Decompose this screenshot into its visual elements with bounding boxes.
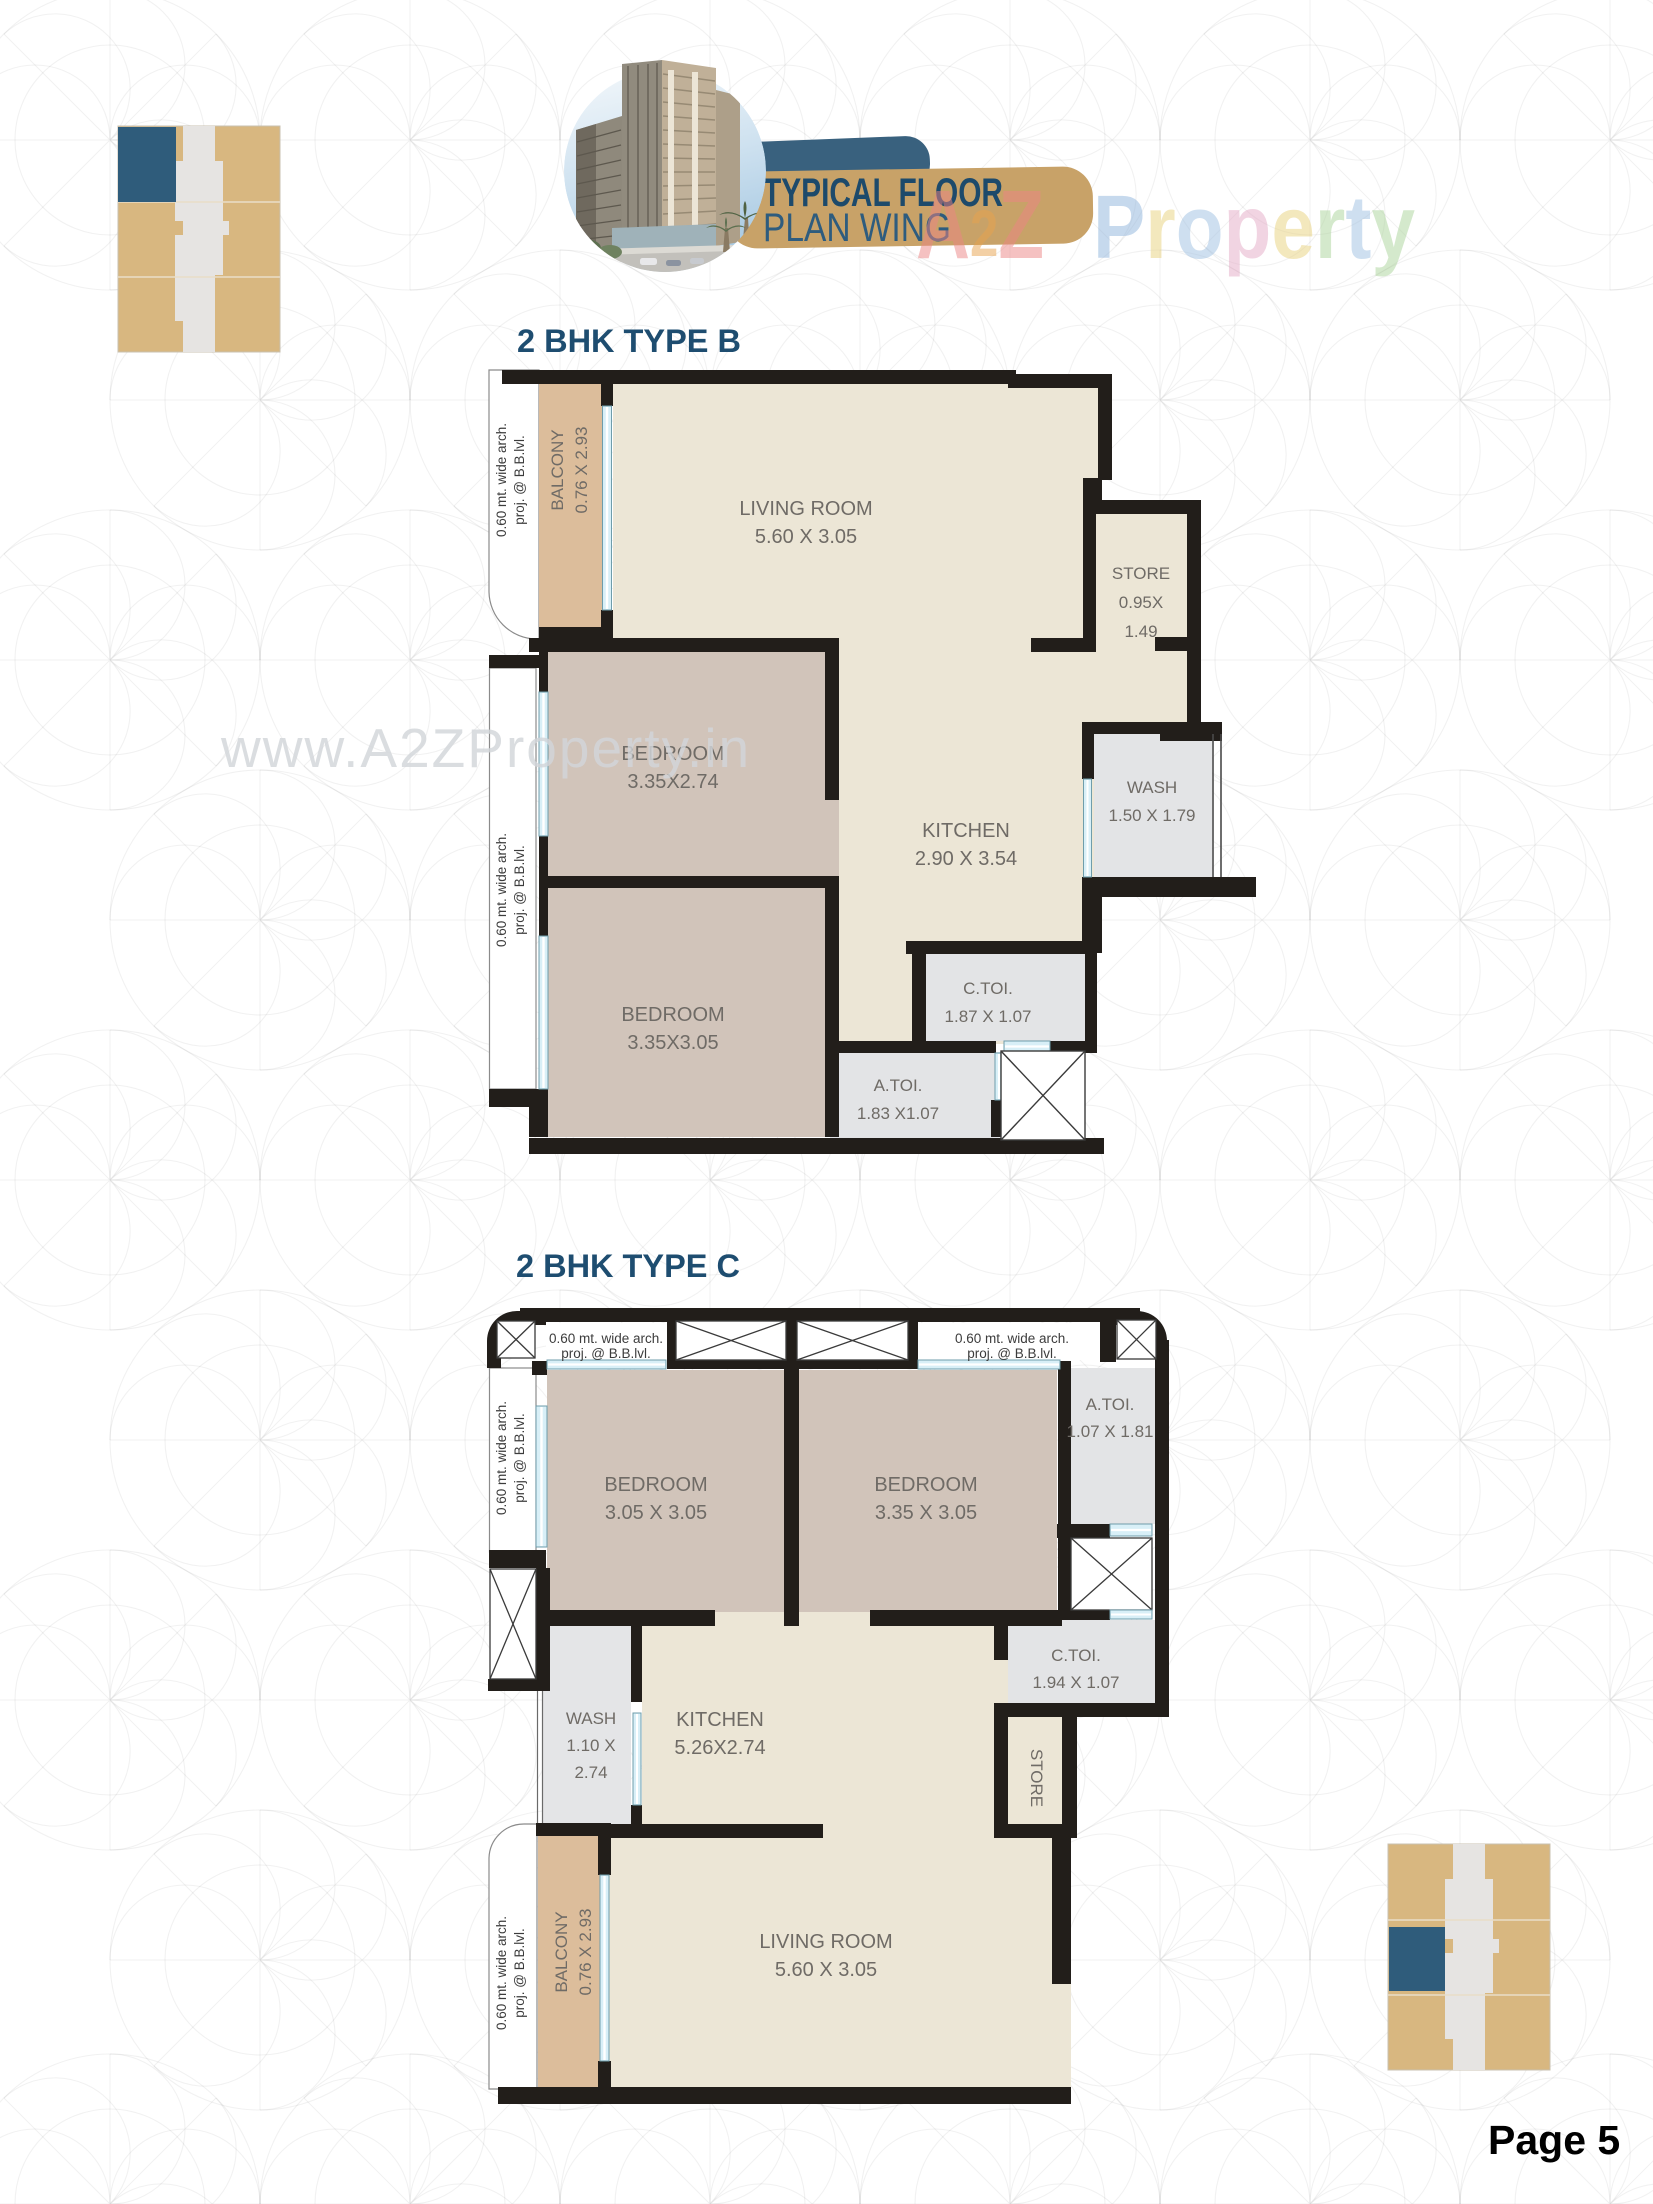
svg-text:5.60 X 3.05: 5.60 X 3.05 [755, 526, 857, 548]
svg-text:A.TOI.: A.TOI. [874, 1076, 923, 1095]
svg-text:0.60 mt. wide arch.: 0.60 mt. wide arch. [494, 423, 509, 537]
svg-text:2.74: 2.74 [574, 1763, 607, 1782]
svg-text:3.35 X 3.05: 3.35 X 3.05 [875, 1502, 977, 1524]
svg-text:proj. @ B.B.lvl.: proj. @ B.B.lvl. [512, 1928, 527, 2017]
svg-text:C.TOI.: C.TOI. [1051, 1646, 1101, 1665]
svg-text:0.76 X 2.93: 0.76 X 2.93 [572, 427, 591, 514]
svg-text:A.TOI.: A.TOI. [1086, 1395, 1135, 1414]
svg-text:5.26X2.74: 5.26X2.74 [674, 1737, 765, 1759]
svg-text:WASH: WASH [1127, 778, 1177, 797]
svg-text:1.49: 1.49 [1124, 622, 1157, 641]
svg-text:0.60 mt. wide arch.: 0.60 mt. wide arch. [494, 833, 509, 947]
svg-text:Property: Property [1093, 178, 1415, 278]
svg-text:BEDROOM: BEDROOM [874, 1474, 977, 1496]
svg-text:proj. @ B.B.lvl.: proj. @ B.B.lvl. [561, 1346, 650, 1361]
svg-text:0.95X: 0.95X [1119, 593, 1163, 612]
svg-text:3.35X3.05: 3.35X3.05 [627, 1032, 718, 1054]
svg-text:LIVING ROOM: LIVING ROOM [739, 498, 872, 520]
svg-text:KITCHEN: KITCHEN [922, 820, 1010, 842]
svg-text:KITCHEN: KITCHEN [676, 1709, 764, 1731]
svg-text:1.87 X 1.07: 1.87 X 1.07 [945, 1007, 1032, 1026]
svg-text:BEDROOM: BEDROOM [621, 1004, 724, 1026]
svg-text:BEDROOM: BEDROOM [604, 1474, 707, 1496]
svg-text:2.90 X 3.54: 2.90 X 3.54 [915, 848, 1017, 870]
svg-text:proj. @ B.B.lvl.: proj. @ B.B.lvl. [512, 845, 527, 934]
svg-text:5.60 X 3.05: 5.60 X 3.05 [775, 1959, 877, 1981]
svg-text:3.05 X 3.05: 3.05 X 3.05 [605, 1502, 707, 1524]
svg-text:1.83 X1.07: 1.83 X1.07 [857, 1104, 939, 1123]
svg-text:WASH: WASH [566, 1709, 616, 1728]
svg-text:1.07 X 1.81: 1.07 X 1.81 [1067, 1422, 1154, 1441]
svg-text:0.60 mt. wide arch.: 0.60 mt. wide arch. [549, 1331, 663, 1346]
svg-text:STORE: STORE [1027, 1749, 1046, 1807]
svg-text:BALCONY: BALCONY [552, 1911, 571, 1992]
svg-text:0.76 X 2.93: 0.76 X 2.93 [576, 1909, 595, 1996]
svg-text:1.50 X 1.79: 1.50 X 1.79 [1109, 806, 1196, 825]
svg-text:0.60 mt. wide arch.: 0.60 mt. wide arch. [494, 1916, 509, 2030]
svg-text:1.94 X 1.07: 1.94 X 1.07 [1033, 1673, 1120, 1692]
svg-text:0.60 mt. wide arch.: 0.60 mt. wide arch. [494, 1401, 509, 1515]
svg-text:LIVING ROOM: LIVING ROOM [759, 1931, 892, 1953]
svg-text:BALCONY: BALCONY [548, 429, 567, 510]
svg-text:proj. @ B.B.lvl.: proj. @ B.B.lvl. [967, 1346, 1056, 1361]
svg-text:1.10 X: 1.10 X [566, 1736, 615, 1755]
svg-text:C.TOI.: C.TOI. [963, 979, 1013, 998]
svg-text:proj. @ B.B.lvl.: proj. @ B.B.lvl. [512, 435, 527, 524]
svg-text:STORE: STORE [1112, 564, 1170, 583]
svg-text:0.60 mt. wide arch.: 0.60 mt. wide arch. [955, 1331, 1069, 1346]
svg-text:proj. @ B.B.lvl.: proj. @ B.B.lvl. [512, 1413, 527, 1502]
